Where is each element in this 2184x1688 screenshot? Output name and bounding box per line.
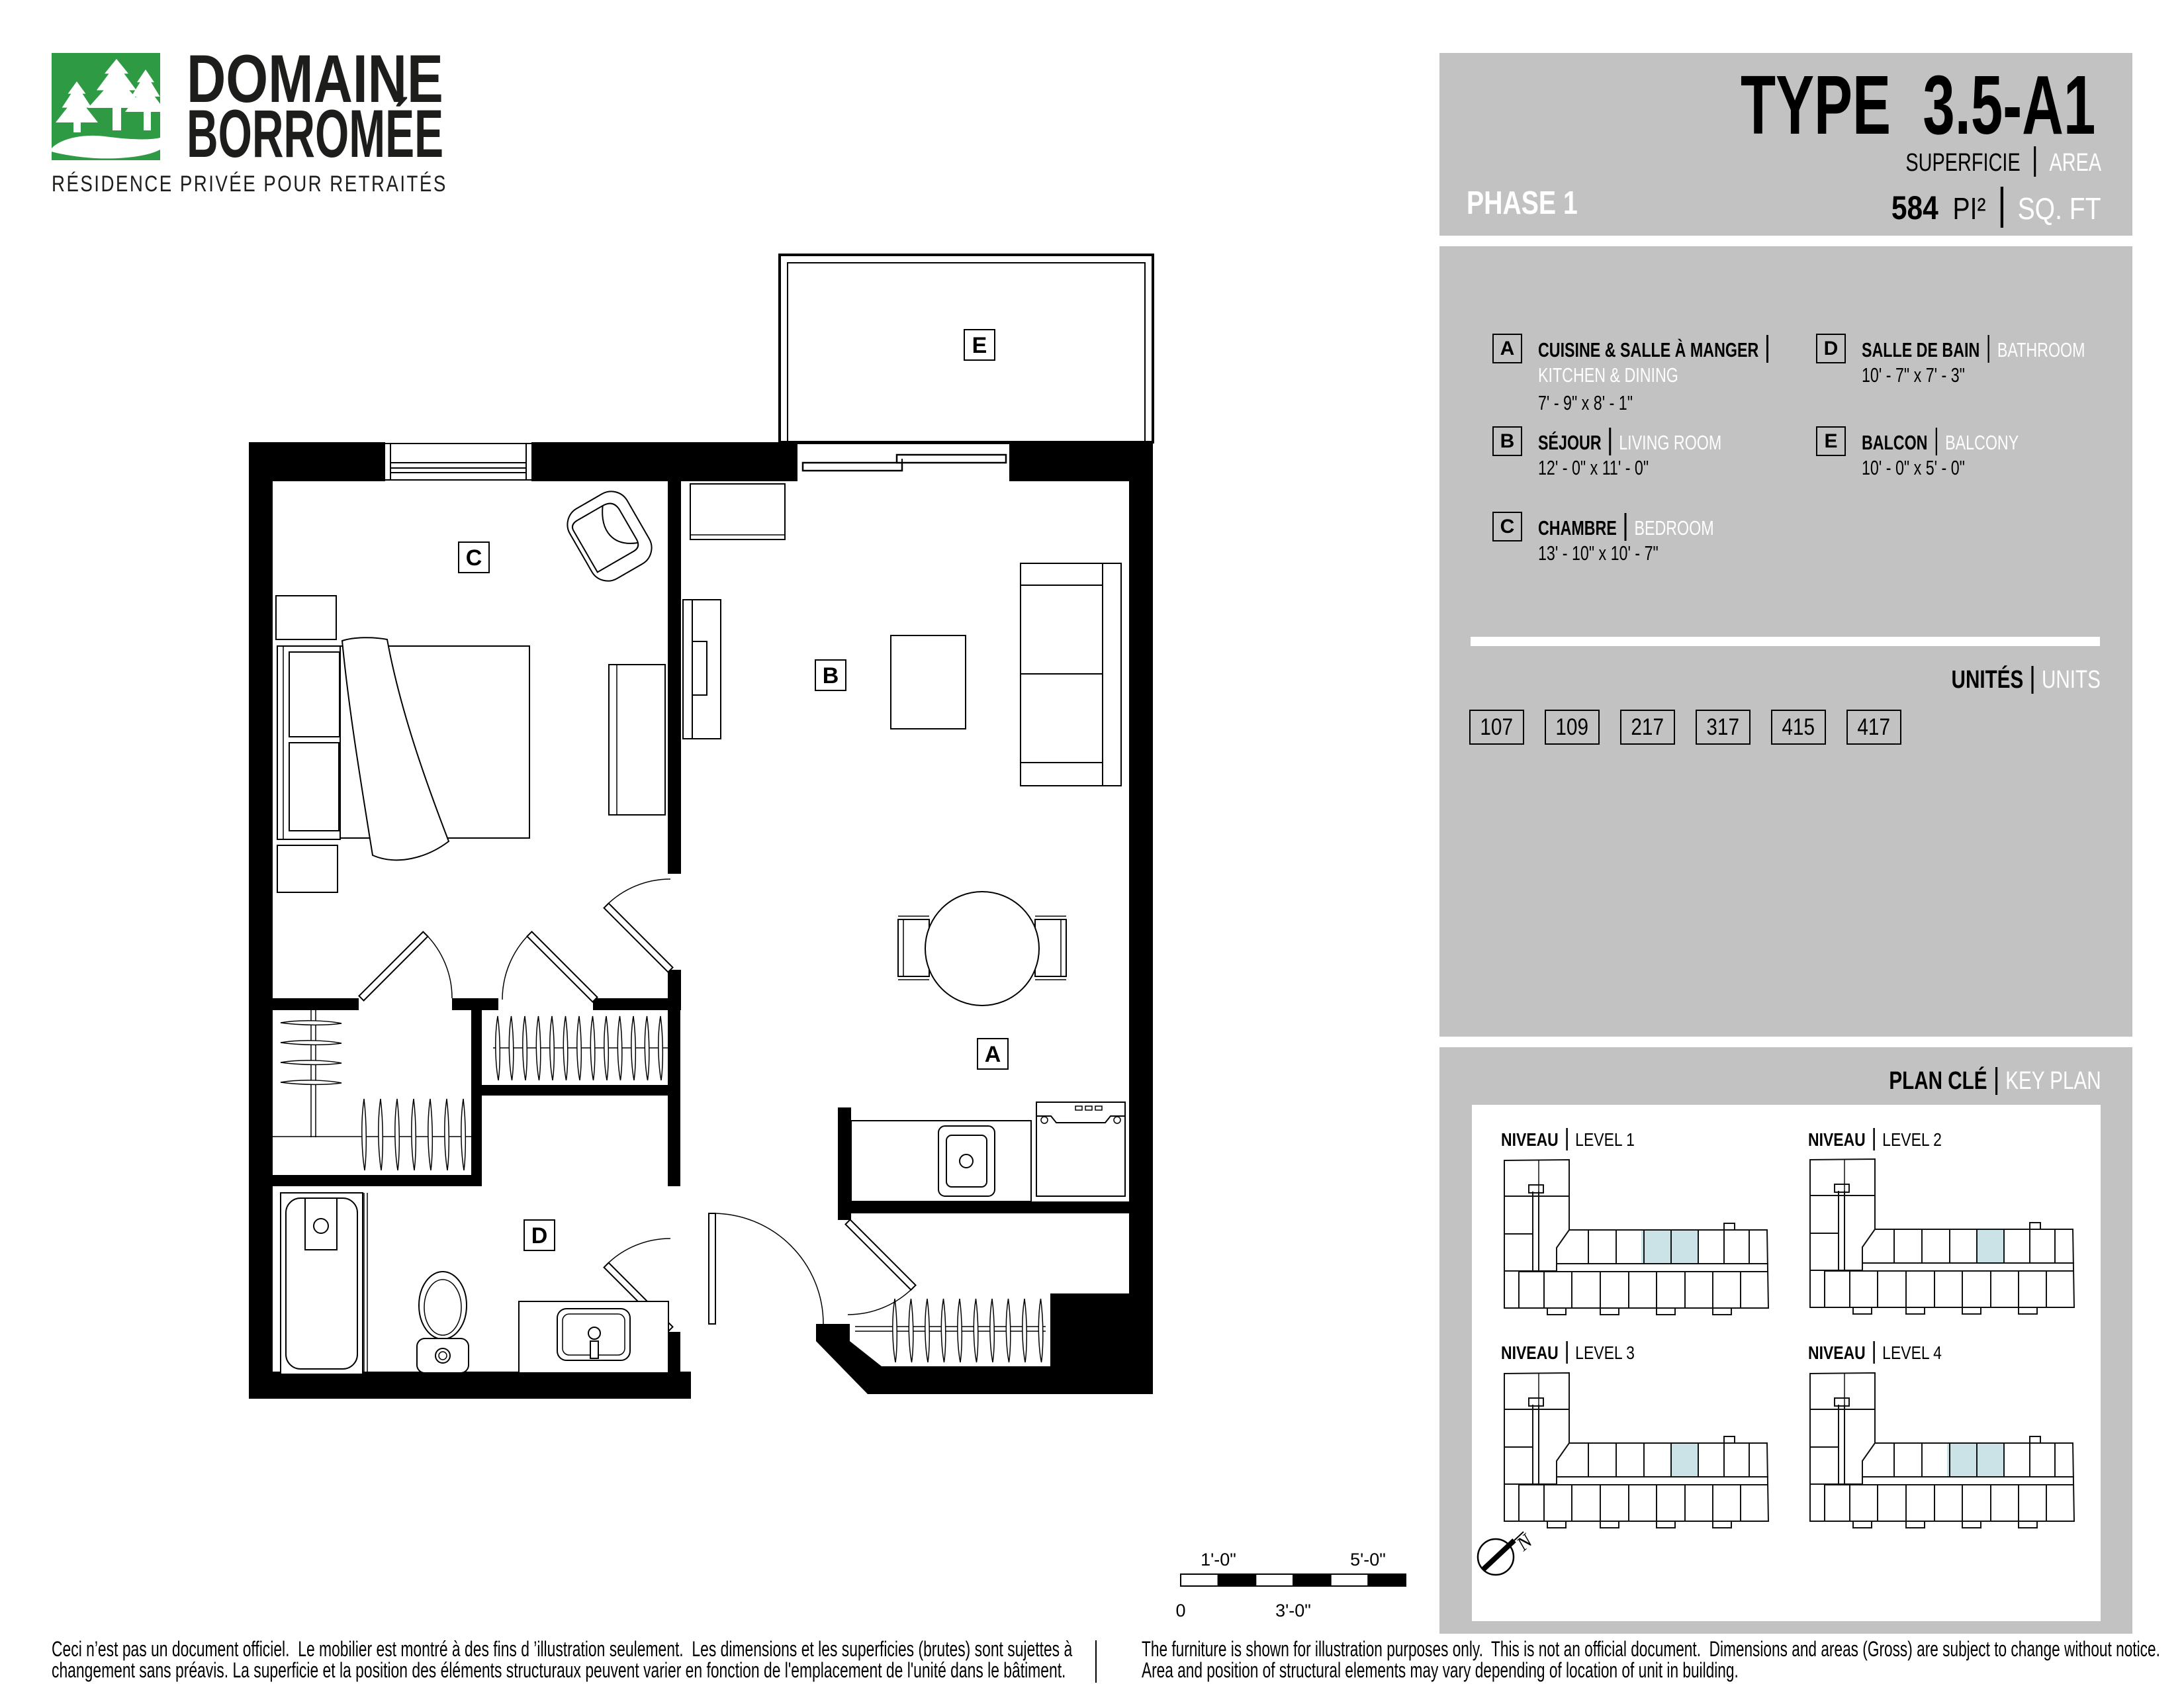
- svg-text:E: E: [972, 333, 987, 358]
- svg-text:D: D: [531, 1223, 548, 1248]
- svg-text:A: A: [985, 1042, 1001, 1067]
- svg-text:5'-0": 5'-0": [1350, 1550, 1386, 1570]
- svg-text:1'-0": 1'-0": [1201, 1550, 1236, 1570]
- svg-text:N: N: [1512, 1529, 1538, 1556]
- svg-text:0: 0: [1175, 1601, 1185, 1620]
- svg-text:3'-0": 3'-0": [1275, 1601, 1311, 1620]
- svg-text:C: C: [466, 545, 482, 571]
- svg-text:B: B: [823, 663, 839, 688]
